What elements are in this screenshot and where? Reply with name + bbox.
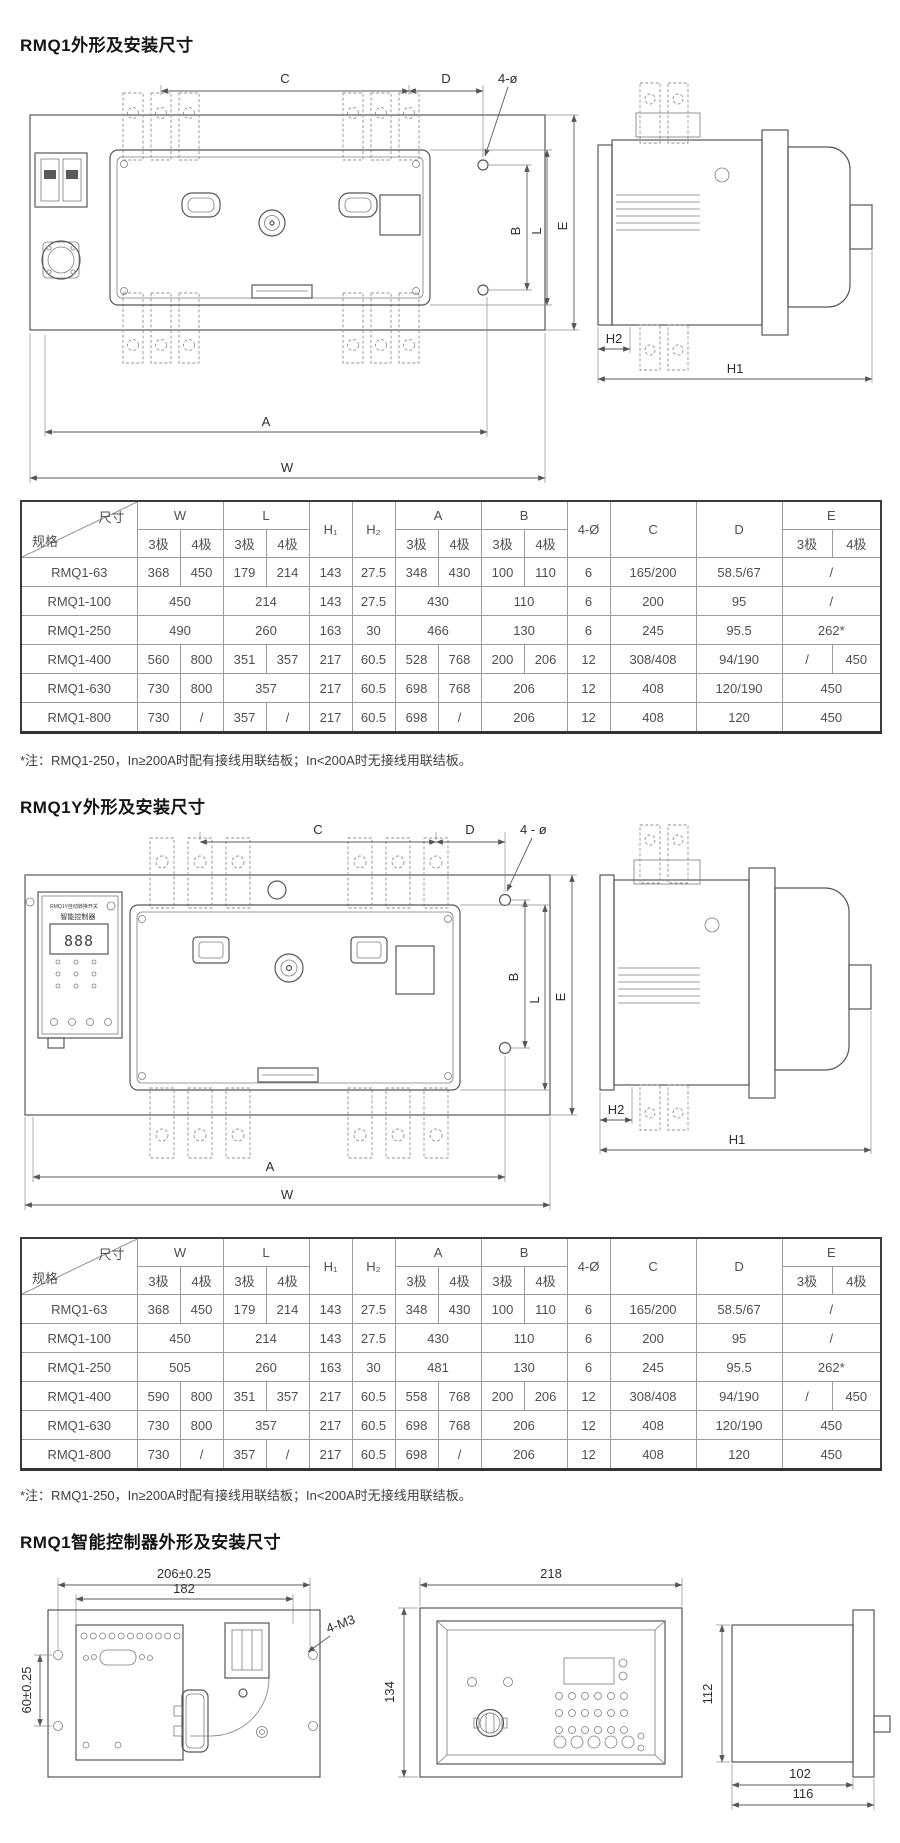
- mounting-hole: [478, 160, 488, 170]
- row-header-spec: RMQ1-63: [21, 1295, 137, 1324]
- table-cell: 130: [481, 616, 567, 645]
- table-cell: 698: [395, 703, 438, 733]
- table-cell: 110: [481, 1324, 567, 1353]
- table-cell: 408: [610, 703, 696, 733]
- table-cell: 6: [567, 587, 610, 616]
- subcol-4p: 4极: [832, 530, 881, 558]
- table-cell: 466: [395, 616, 481, 645]
- table-cell: 217: [309, 1382, 352, 1411]
- section1-title: RMQ1外形及安装尺寸: [20, 31, 194, 56]
- table-row: RMQ1-25050526016330481130624595.5262*: [21, 1353, 881, 1382]
- col-d: D: [696, 501, 782, 558]
- table-cell: 260: [223, 1353, 309, 1382]
- table-cell: 60.5: [352, 1382, 395, 1411]
- table-cell: /: [266, 1440, 309, 1470]
- row-header-spec: RMQ1-800: [21, 703, 137, 733]
- corner-spec-label: 规格: [32, 531, 58, 550]
- controller-side-view: 112 102 116: [700, 1610, 890, 1810]
- table-cell: 357: [266, 645, 309, 674]
- rmq1-side-view: H2 H1: [598, 83, 872, 383]
- rmq1y-front-view: RMQ1Y自动转换开关 智能控制器 888: [25, 838, 550, 1158]
- subcol-4p: 4极: [438, 1267, 481, 1295]
- table-cell: 217: [309, 703, 352, 733]
- controller-module: RMQ1Y自动转换开关 智能控制器 888: [26, 892, 122, 1048]
- table-cell: 206: [524, 1382, 567, 1411]
- rmq1y-dimension-table: 尺寸 规格 W L H₁ H₂ A B 4-Ø C D E 3极4极 3极4极 …: [20, 1237, 882, 1471]
- subcol-3p: 3极: [782, 530, 832, 558]
- row-header-spec: RMQ1-630: [21, 674, 137, 703]
- subcol-4p: 4极: [832, 1267, 881, 1295]
- table-cell: 6: [567, 558, 610, 587]
- dim-label-l: L: [529, 227, 544, 234]
- dim-label-d: D: [441, 71, 450, 86]
- table-cell: 430: [438, 1295, 481, 1324]
- table-cell: 245: [610, 1353, 696, 1382]
- section3-title: RMQ1智能控制器外形及安装尺寸: [20, 1528, 281, 1553]
- table-row: RMQ1-25049026016330466130624595.5262*: [21, 616, 881, 645]
- subcol-4p: 4极: [438, 530, 481, 558]
- display-digits: 888: [64, 932, 94, 950]
- table-cell: 27.5: [352, 1324, 395, 1353]
- table-cell: 560: [137, 645, 180, 674]
- table-cell: 6: [567, 1324, 610, 1353]
- table-cell: 165/200: [610, 558, 696, 587]
- subcol-4p: 4极: [524, 1267, 567, 1295]
- dim-label-c: C: [280, 71, 289, 86]
- table-cell: 6: [567, 1353, 610, 1382]
- table-row: RMQ1-10045021414327.5430110620095/: [21, 587, 881, 616]
- table-cell: 357: [223, 674, 309, 703]
- shaft: [874, 1716, 890, 1732]
- table-cell: 308/408: [610, 1382, 696, 1411]
- table-cell: 698: [395, 1440, 438, 1470]
- table-cell: 590: [137, 1382, 180, 1411]
- col-w: W: [137, 1238, 223, 1267]
- table-cell: 60.5: [352, 1411, 395, 1440]
- table-cell: 206: [481, 1411, 567, 1440]
- table-cell: 12: [567, 1440, 610, 1470]
- table-cell: 800: [180, 1382, 223, 1411]
- table-cell: 558: [395, 1382, 438, 1411]
- mounting-hole: [500, 895, 511, 906]
- row-header-spec: RMQ1-400: [21, 645, 137, 674]
- table-cell: 450: [782, 1411, 881, 1440]
- col-l: L: [223, 501, 309, 530]
- rmq1y-outline-drawing: RMQ1Y自动转换开关 智能控制器 888: [0, 820, 900, 1237]
- table-cell: 143: [309, 1295, 352, 1324]
- table-cell: /: [782, 587, 881, 616]
- dim-label-l: L: [527, 996, 542, 1003]
- dim-label-182: 182: [173, 1581, 195, 1596]
- table-cell: 100: [481, 558, 524, 587]
- dim-label-102: 102: [789, 1766, 811, 1781]
- table-row: RMQ1-6336845017921414327.534843010011061…: [21, 558, 881, 587]
- table-cell: 528: [395, 645, 438, 674]
- row-header-spec: RMQ1-400: [21, 1382, 137, 1411]
- row-header-spec: RMQ1-630: [21, 1411, 137, 1440]
- table-cell: 27.5: [352, 587, 395, 616]
- rmq1-outline-drawing: C D 4-ø B L E A W: [0, 55, 900, 500]
- col-h1: H₁: [309, 1238, 352, 1295]
- mounting-hole: [478, 285, 488, 295]
- table-cell: 357: [223, 1440, 266, 1470]
- col-b: B: [481, 1238, 567, 1267]
- table-cell: 12: [567, 1411, 610, 1440]
- corner-dim-label: 尺寸: [98, 1244, 124, 1263]
- table-cell: 351: [223, 1382, 266, 1411]
- dim-label-w: W: [281, 460, 294, 475]
- dim-label-a: A: [266, 1159, 275, 1174]
- col-e: E: [782, 1238, 881, 1267]
- col-a: A: [395, 501, 481, 530]
- table-cell: 12: [567, 703, 610, 733]
- table-cell: 450: [137, 587, 223, 616]
- col-l: L: [223, 1238, 309, 1267]
- table-cell: 120: [696, 703, 782, 733]
- dim-label-h1: H1: [727, 361, 744, 376]
- dim-label-h2: H2: [606, 331, 623, 346]
- table-cell: 110: [481, 587, 567, 616]
- table-cell: 110: [524, 558, 567, 587]
- dimensions-front: C D 4 - ø B L E A W: [25, 822, 577, 1210]
- section2-title: RMQ1Y外形及安装尺寸: [20, 793, 205, 818]
- table-cell: 200: [481, 1382, 524, 1411]
- table-cell: 120/190: [696, 674, 782, 703]
- corner-dim-label: 尺寸: [98, 507, 124, 526]
- table-cell: 60.5: [352, 674, 395, 703]
- table-cell: 12: [567, 674, 610, 703]
- table-cell: 357: [223, 703, 266, 733]
- bottom-terminals: [150, 1088, 448, 1158]
- dim-label-112: 112: [700, 1684, 715, 1705]
- switch-body: [130, 905, 460, 1090]
- dim-label-h1: H1: [729, 1132, 746, 1147]
- table-cell: 95.5: [696, 1353, 782, 1382]
- table-cell: 200: [610, 1324, 696, 1353]
- table-cell: 348: [395, 1295, 438, 1324]
- table-cell: /: [266, 703, 309, 733]
- table-cell: 94/190: [696, 1382, 782, 1411]
- subcol-4p: 4极: [266, 1267, 309, 1295]
- table-cell: 450: [137, 1324, 223, 1353]
- col-e: E: [782, 501, 881, 530]
- col-d: D: [696, 1238, 782, 1295]
- table-cell: 179: [223, 558, 266, 587]
- rmq1-front-view: [30, 93, 545, 363]
- subcol-4p: 4极: [180, 1267, 223, 1295]
- subcol-4p: 4极: [524, 530, 567, 558]
- controller-front-view: 218 134: [382, 1566, 682, 1777]
- controller-brand-text: RMQ1Y自动转换开关: [50, 903, 98, 910]
- center-knob: [259, 210, 285, 236]
- table-cell: 698: [395, 1411, 438, 1440]
- table-cell: 430: [438, 558, 481, 587]
- table-cell: 12: [567, 645, 610, 674]
- table-cell: 260: [223, 616, 309, 645]
- col-4phi: 4-Ø: [567, 501, 610, 558]
- table-cell: 730: [137, 1440, 180, 1470]
- table-row: RMQ1-6336845017921414327.534843010011061…: [21, 1295, 881, 1324]
- table-cell: 58.5/67: [696, 1295, 782, 1324]
- table-cell: 95: [696, 587, 782, 616]
- aux-breaker: [35, 153, 87, 207]
- table-row: RMQ1-10045021414327.5430110620095/: [21, 1324, 881, 1353]
- table-cell: 768: [438, 1411, 481, 1440]
- corner-spec-label: 规格: [32, 1268, 58, 1287]
- nameplate: [396, 946, 434, 994]
- front-panel-controls: [468, 1658, 645, 1751]
- table-cell: 30: [352, 616, 395, 645]
- table-cell: 206: [481, 1440, 567, 1470]
- subcol-3p: 3极: [137, 1267, 180, 1295]
- switch-body: [110, 150, 430, 305]
- table-row: RMQ1-63073080035721760.56987682061240812…: [21, 674, 881, 703]
- dim-label-4phi: 4-ø: [498, 71, 518, 86]
- table-cell: /: [180, 1440, 223, 1470]
- table-cell: /: [782, 1324, 881, 1353]
- top-terminals: [150, 838, 448, 908]
- table-cell: 450: [782, 674, 881, 703]
- table-cell: 262*: [782, 616, 881, 645]
- table-cell: 505: [137, 1353, 223, 1382]
- table-cell: 450: [180, 1295, 223, 1324]
- dim-label-4m3: 4-M3: [324, 1612, 357, 1636]
- dim-label-c: C: [313, 822, 322, 837]
- subcol-4p: 4极: [180, 530, 223, 558]
- round-connector: [42, 241, 80, 279]
- table-cell: 450: [180, 558, 223, 587]
- col-h2: H₂: [352, 501, 395, 558]
- table-row: RMQ1-63073080035721760.56987682061240812…: [21, 1411, 881, 1440]
- controller-name-text: 智能控制器: [61, 912, 96, 921]
- table-cell: 27.5: [352, 558, 395, 587]
- table-cell: 450: [782, 703, 881, 733]
- table-cell: 110: [524, 1295, 567, 1324]
- table-cell: 800: [180, 645, 223, 674]
- dim-label-218: 218: [540, 1566, 562, 1581]
- dim-label-e: E: [553, 992, 568, 1001]
- table-cell: 94/190: [696, 645, 782, 674]
- table-cell: 730: [137, 674, 180, 703]
- table-cell: 95: [696, 1324, 782, 1353]
- corner-header: 尺寸 规格: [21, 501, 137, 558]
- table-cell: 768: [438, 645, 481, 674]
- table-cell: /: [782, 1382, 832, 1411]
- table-cell: 120/190: [696, 1411, 782, 1440]
- subcol-3p: 3极: [481, 530, 524, 558]
- table-cell: 800: [180, 1411, 223, 1440]
- mounting-hole: [500, 1043, 511, 1054]
- table-cell: 408: [610, 674, 696, 703]
- datasheet-page: RMQ1外形及安装尺寸: [0, 0, 900, 1843]
- dimensions-front: C D 4-ø B L E A W: [30, 71, 579, 483]
- subcol-4p: 4极: [266, 530, 309, 558]
- table-cell: 6: [567, 616, 610, 645]
- table-row: RMQ1-800730/357/21760.5698/2061240812045…: [21, 1440, 881, 1470]
- table-cell: 768: [438, 674, 481, 703]
- row-header-spec: RMQ1-800: [21, 1440, 137, 1470]
- subcol-3p: 3极: [395, 1267, 438, 1295]
- col-w: W: [137, 501, 223, 530]
- table-cell: 408: [610, 1411, 696, 1440]
- col-4phi: 4-Ø: [567, 1238, 610, 1295]
- table-cell: /: [782, 645, 832, 674]
- table-row: RMQ1-800730/357/21760.5698/2061240812045…: [21, 703, 881, 733]
- table-cell: 58.5/67: [696, 558, 782, 587]
- table-cell: 768: [438, 1382, 481, 1411]
- table-cell: 143: [309, 587, 352, 616]
- subcol-3p: 3极: [395, 530, 438, 558]
- col-h2: H₂: [352, 1238, 395, 1295]
- table-cell: /: [438, 703, 481, 733]
- table-cell: 450: [832, 645, 881, 674]
- dim-label-w: W: [281, 1187, 294, 1202]
- subcol-3p: 3极: [223, 1267, 266, 1295]
- dim-label-4phi: 4 - ø: [520, 822, 547, 837]
- table-cell: 368: [137, 558, 180, 587]
- table-cell: 214: [223, 1324, 309, 1353]
- table-cell: 143: [309, 1324, 352, 1353]
- table-cell: 430: [395, 587, 481, 616]
- table-cell: 698: [395, 674, 438, 703]
- table-cell: 262*: [782, 1353, 881, 1382]
- dim-label-d: D: [465, 822, 474, 837]
- table-cell: 143: [309, 558, 352, 587]
- col-h1: H₁: [309, 501, 352, 558]
- logo-icon: [107, 902, 115, 910]
- table-row: RMQ1-40056080035135721760.55287682002061…: [21, 645, 881, 674]
- dim-label-b: B: [508, 227, 523, 236]
- table-cell: 6: [567, 1295, 610, 1324]
- table-cell: 481: [395, 1353, 481, 1382]
- row-header-spec: RMQ1-63: [21, 558, 137, 587]
- table-cell: 800: [180, 674, 223, 703]
- table-cell: 245: [610, 616, 696, 645]
- table-cell: /: [180, 703, 223, 733]
- table-cell: 206: [524, 645, 567, 674]
- table-cell: 368: [137, 1295, 180, 1324]
- dim-label-b: B: [506, 973, 521, 982]
- controller-rear-view: 206±0.25 182 60±0.25 4-M3: [19, 1566, 357, 1777]
- table-cell: 217: [309, 645, 352, 674]
- subcol-3p: 3极: [223, 530, 266, 558]
- dim-label-116: 116: [793, 1786, 814, 1801]
- table-cell: 100: [481, 1295, 524, 1324]
- table-cell: 351: [223, 645, 266, 674]
- table-cell: 12: [567, 1382, 610, 1411]
- table-cell: 206: [481, 703, 567, 733]
- row-header-spec: RMQ1-250: [21, 616, 137, 645]
- table-cell: 60.5: [352, 1440, 395, 1470]
- bottom-terminals: [123, 293, 419, 363]
- rmq1y-side-view: H2 H1: [600, 825, 871, 1154]
- table-cell: 163: [309, 1353, 352, 1382]
- row-header-spec: RMQ1-100: [21, 1324, 137, 1353]
- col-c: C: [610, 501, 696, 558]
- table-cell: 200: [610, 587, 696, 616]
- table-cell: 214: [266, 1295, 309, 1324]
- table-cell: 450: [782, 1440, 881, 1470]
- table-cell: 217: [309, 1440, 352, 1470]
- dim-label-206: 206±0.25: [157, 1566, 211, 1581]
- table-cell: 217: [309, 674, 352, 703]
- table-cell: 357: [223, 1411, 309, 1440]
- table-cell: 730: [137, 1411, 180, 1440]
- col-c: C: [610, 1238, 696, 1295]
- table-cell: 200: [481, 645, 524, 674]
- dim-label-e: E: [555, 221, 570, 230]
- table-cell: 163: [309, 616, 352, 645]
- table-cell: 217: [309, 1411, 352, 1440]
- footnote-1: *注：RMQ1-250，In≥200A时配有接线用联结板；In<200A时无接线…: [20, 750, 472, 769]
- table-cell: 165/200: [610, 1295, 696, 1324]
- col-b: B: [481, 501, 567, 530]
- table-cell: 27.5: [352, 1295, 395, 1324]
- table-cell: 450: [832, 1382, 881, 1411]
- table-cell: /: [438, 1440, 481, 1470]
- col-a: A: [395, 1238, 481, 1267]
- table-cell: 60.5: [352, 703, 395, 733]
- table-cell: 730: [137, 703, 180, 733]
- dim-label-134: 134: [382, 1681, 397, 1703]
- table-cell: 130: [481, 1353, 567, 1382]
- table-cell: 348: [395, 558, 438, 587]
- table-row: RMQ1-40059080035135721760.55587682002061…: [21, 1382, 881, 1411]
- table-cell: 30: [352, 1353, 395, 1382]
- table-cell: 179: [223, 1295, 266, 1324]
- dim-label-h2: H2: [608, 1102, 625, 1117]
- row-header-spec: RMQ1-250: [21, 1353, 137, 1382]
- dim-label-a: A: [262, 414, 271, 429]
- row-header-spec: RMQ1-100: [21, 587, 137, 616]
- table-cell: 206: [481, 674, 567, 703]
- table-cell: 60.5: [352, 645, 395, 674]
- table-cell: 357: [266, 1382, 309, 1411]
- rmq1-dimension-table: 尺寸 规格 W L H₁ H₂ A B 4-Ø C D E 3极4极 3极4极 …: [20, 500, 882, 734]
- table-cell: 408: [610, 1440, 696, 1470]
- table-cell: 120: [696, 1440, 782, 1470]
- nameplate: [380, 195, 420, 235]
- table-cell: 95.5: [696, 616, 782, 645]
- table-cell: 308/408: [610, 645, 696, 674]
- table-cell: 214: [223, 587, 309, 616]
- subcol-3p: 3极: [782, 1267, 832, 1295]
- center-knob: [275, 954, 303, 982]
- subcol-3p: 3极: [137, 530, 180, 558]
- table-cell: 430: [395, 1324, 481, 1353]
- table-cell: 214: [266, 558, 309, 587]
- footnote-2: *注：RMQ1-250，In≥200A时配有接线用联结板；In<200A时无接线…: [20, 1485, 472, 1504]
- corner-header: 尺寸 规格: [21, 1238, 137, 1295]
- subcol-3p: 3极: [481, 1267, 524, 1295]
- dim-label-60: 60±0.25: [19, 1667, 34, 1714]
- table-cell: /: [782, 1295, 881, 1324]
- table-cell: 490: [137, 616, 223, 645]
- table-cell: /: [782, 558, 881, 587]
- controller-outline-drawing: 206±0.25 182 60±0.25 4-M3: [0, 1560, 900, 1843]
